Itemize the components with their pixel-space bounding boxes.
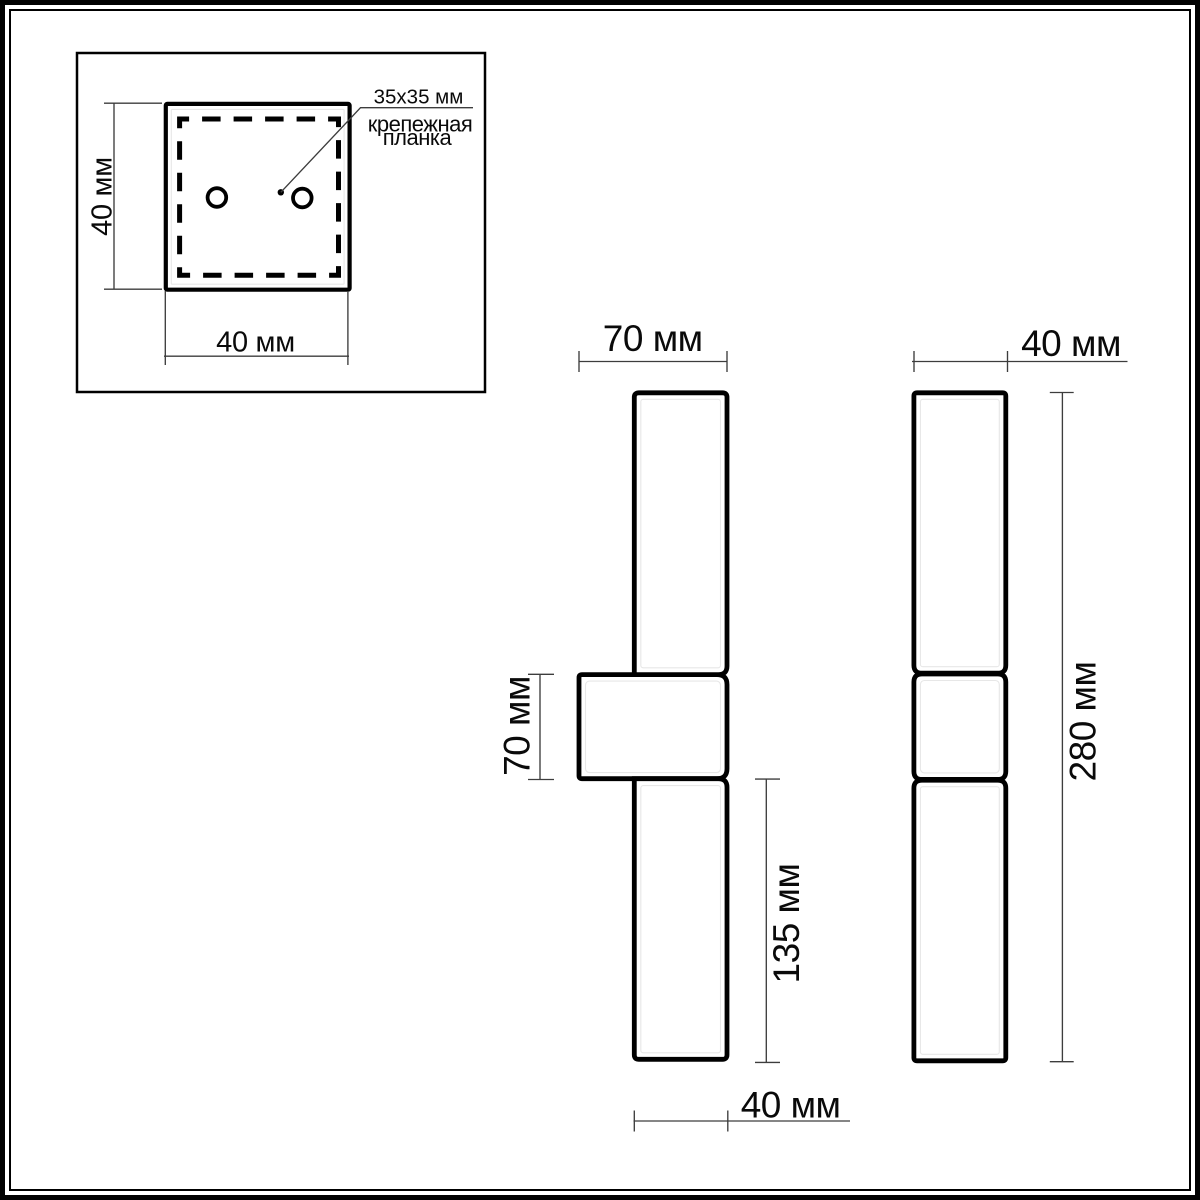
- svg-text:40 мм: 40 мм: [741, 1085, 841, 1126]
- svg-text:70 мм: 70 мм: [603, 318, 703, 359]
- svg-text:35x35 мм: 35x35 мм: [374, 85, 464, 108]
- svg-text:40 мм: 40 мм: [87, 157, 119, 236]
- svg-text:70 мм: 70 мм: [496, 676, 537, 776]
- svg-text:280 мм: 280 мм: [1063, 662, 1104, 782]
- svg-text:планка: планка: [383, 125, 453, 150]
- svg-text:135 мм: 135 мм: [766, 864, 807, 984]
- svg-text:40 мм: 40 мм: [216, 327, 295, 359]
- svg-text:40 мм: 40 мм: [1021, 323, 1121, 364]
